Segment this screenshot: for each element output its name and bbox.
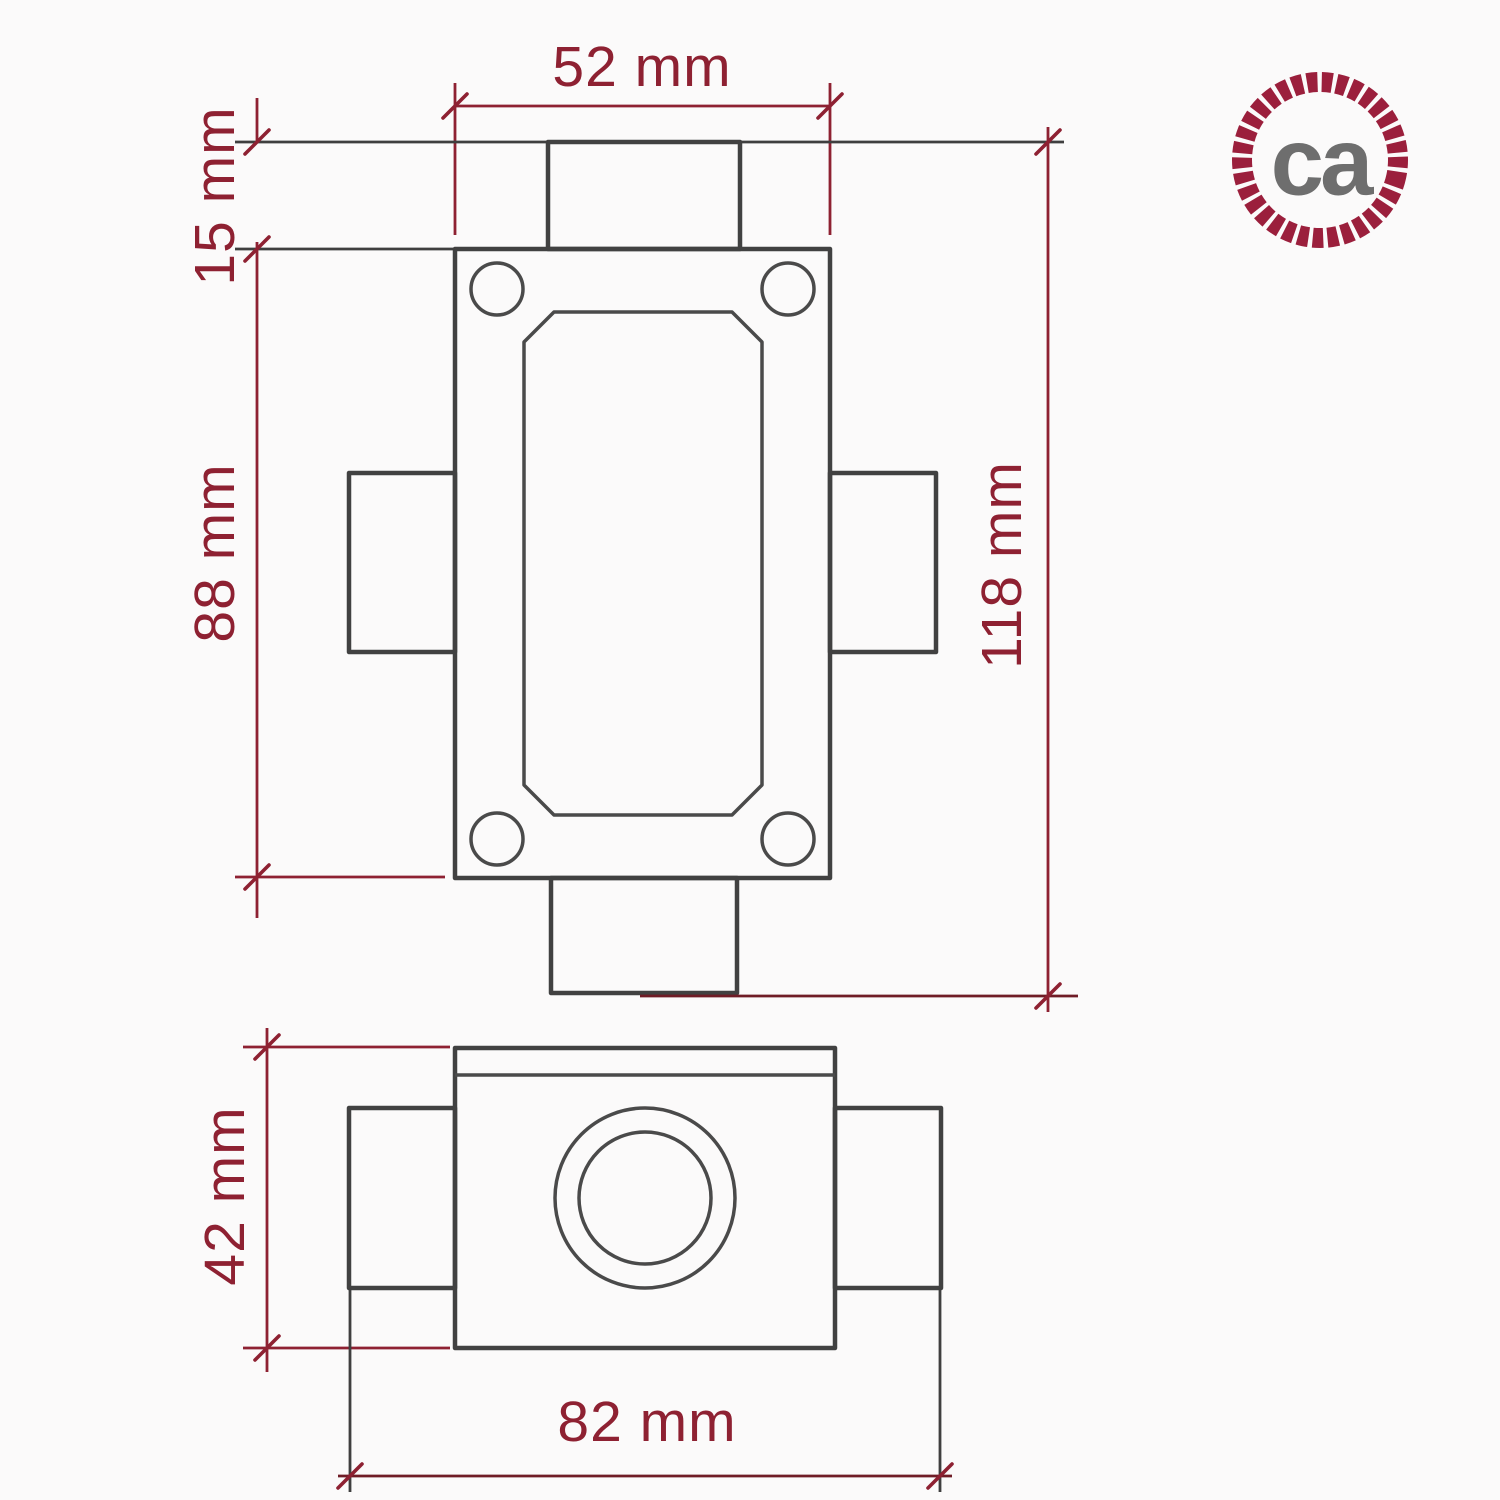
dim-52-label: 52 mm <box>552 35 731 99</box>
screw-hole-bottom-right <box>762 813 814 865</box>
top-view-left-stub <box>349 473 455 652</box>
side-view-body <box>455 1048 835 1348</box>
cable-gland-outer-circle <box>555 1108 735 1288</box>
dim-118-label: 118 mm <box>970 461 1034 669</box>
dim-15-label: 15 mm <box>183 106 247 285</box>
logo-monogram: ca <box>1271 109 1374 216</box>
dimension-88mm: 88 mm <box>183 242 445 918</box>
top-view-bottom-stub <box>551 878 737 993</box>
side-view-right-stub <box>835 1108 941 1288</box>
dimension-15mm: 15 mm <box>183 98 548 286</box>
dimension-42mm: 42 mm <box>193 1028 450 1372</box>
top-view-right-stub <box>830 473 936 652</box>
screw-hole-bottom-left <box>471 813 523 865</box>
dim-88-label: 88 mm <box>183 463 247 642</box>
screw-hole-top-right <box>762 263 814 315</box>
side-view <box>349 1048 941 1348</box>
brand-logo: ca <box>1227 67 1412 252</box>
dimension-82mm: 82 mm <box>338 1288 952 1492</box>
technical-drawing-canvas: 52 mm 15 mm 88 mm 118 mm 42 mm <box>0 0 1500 1500</box>
cable-gland-inner-circle <box>579 1132 711 1264</box>
dimension-52mm: 52 mm <box>443 35 842 235</box>
top-view-body <box>455 249 830 878</box>
top-view-lid-gasket <box>524 312 762 815</box>
dim-82-label: 82 mm <box>557 1390 736 1454</box>
side-view-left-stub <box>349 1108 455 1288</box>
screw-hole-top-left <box>471 263 523 315</box>
dimension-drawing-page: 52 mm 15 mm 88 mm 118 mm 42 mm <box>0 0 1500 1500</box>
dim-42-label: 42 mm <box>193 1106 257 1285</box>
top-view-top-stub <box>548 142 740 249</box>
top-view <box>349 142 936 993</box>
